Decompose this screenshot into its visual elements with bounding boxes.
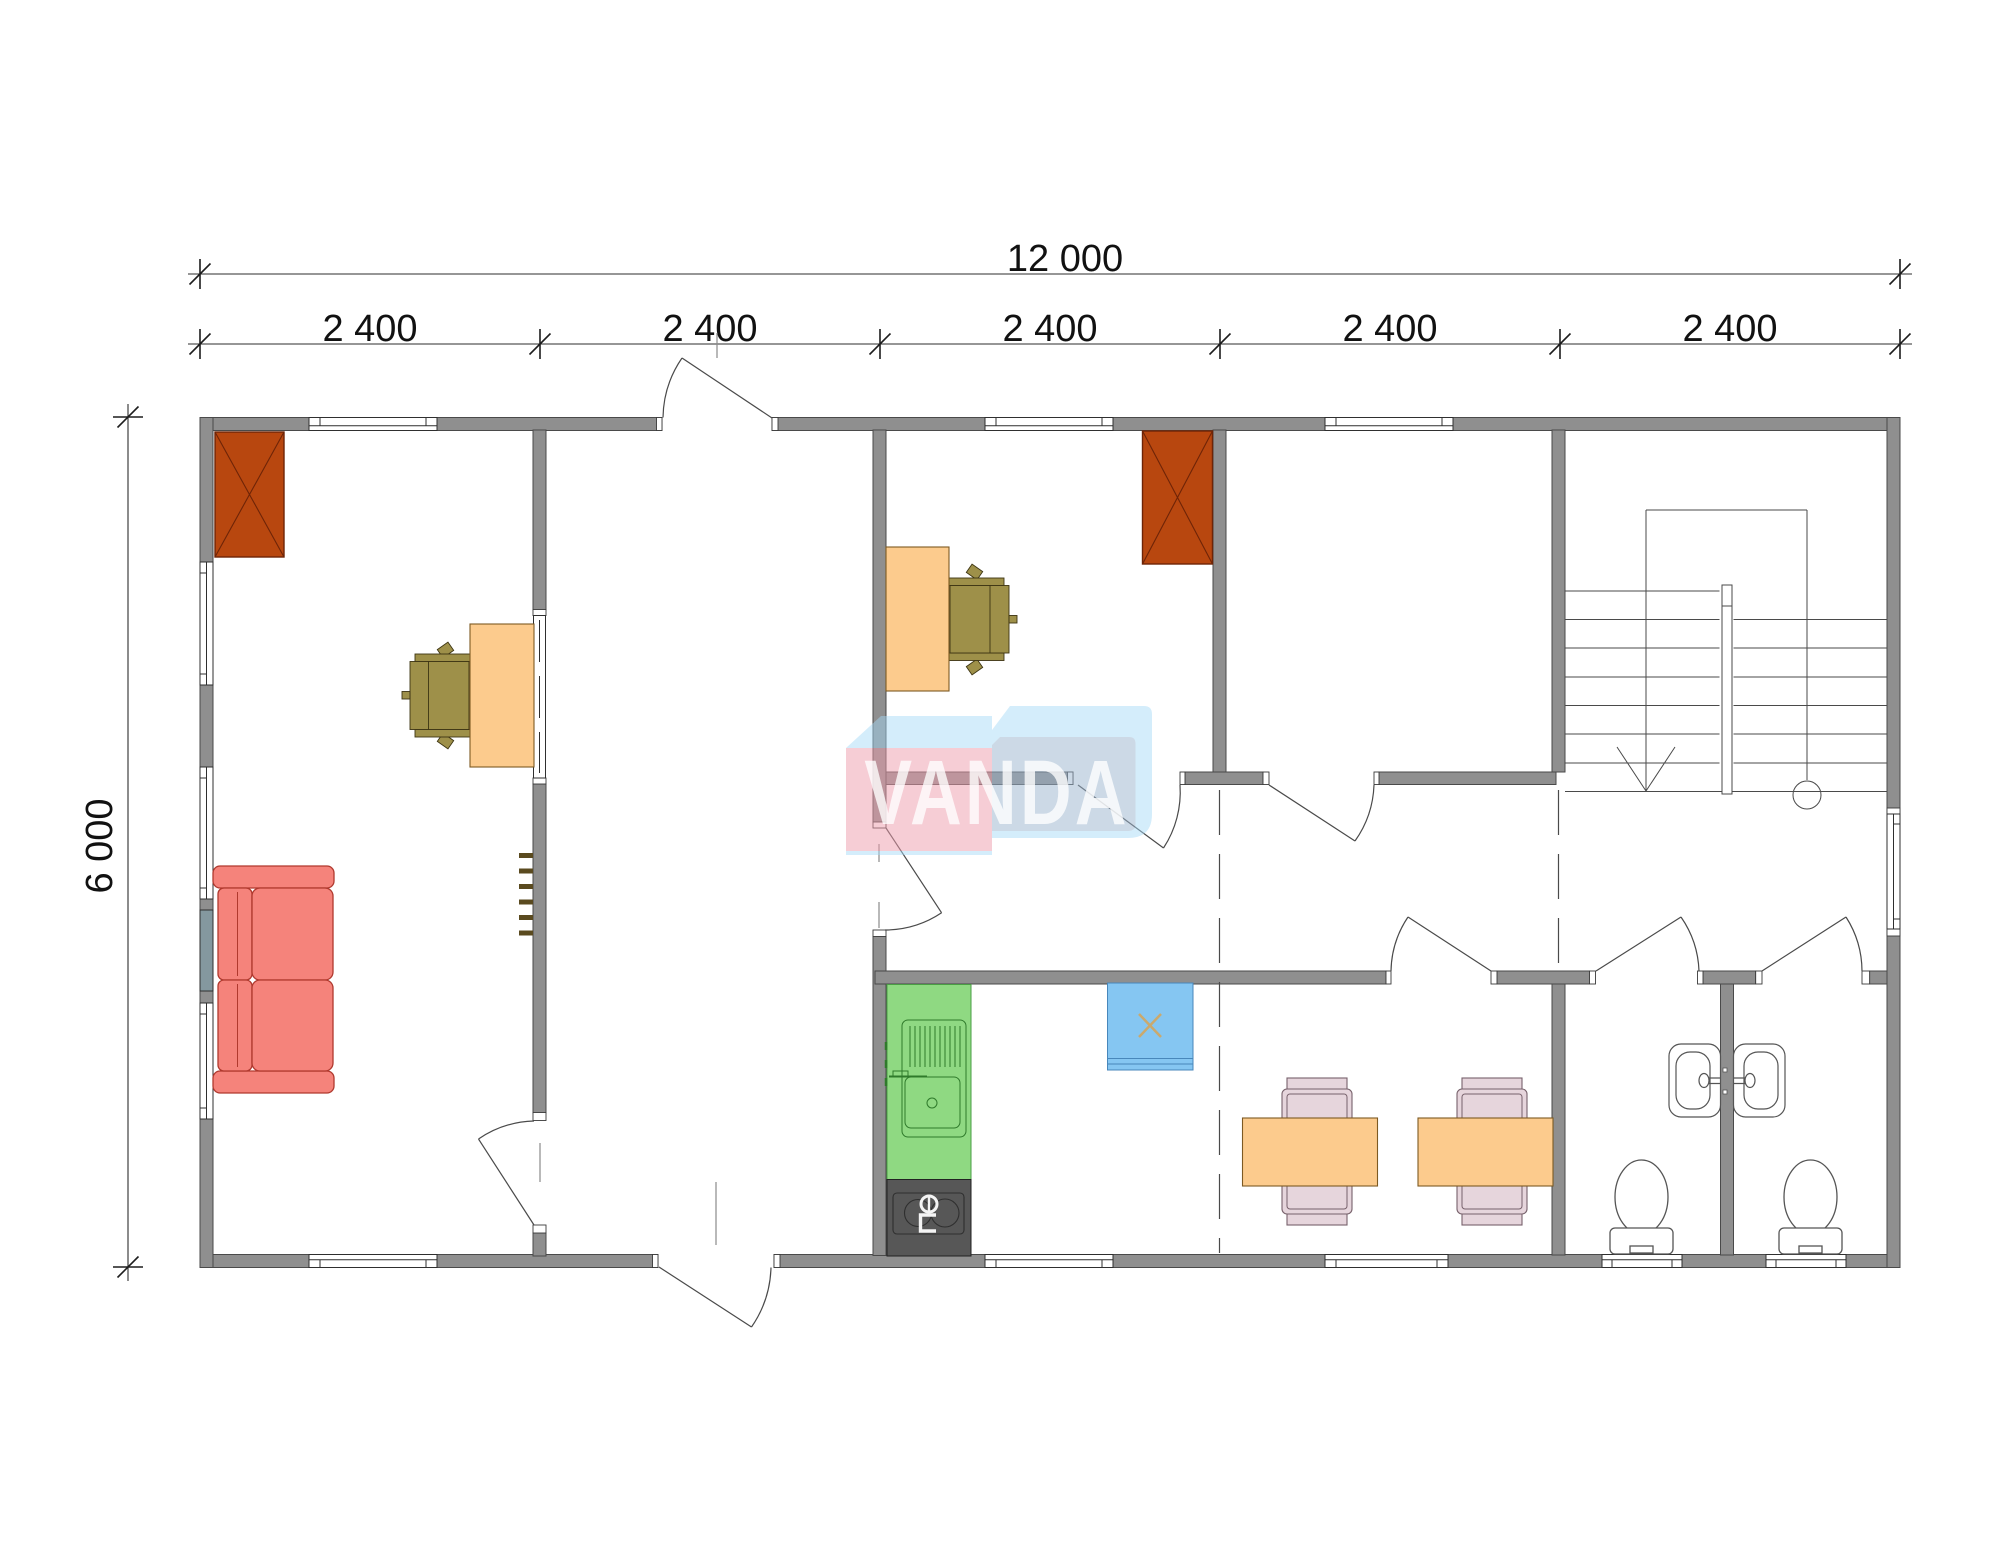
svg-text:VANDA: VANDA [864,741,1129,844]
svg-text:2 400: 2 400 [1002,308,1097,350]
svg-text:6 000: 6 000 [79,798,121,893]
svg-text:2 400: 2 400 [662,308,757,350]
svg-text:2 400: 2 400 [1682,308,1777,350]
svg-text:2 400: 2 400 [322,308,417,350]
svg-text:2 400: 2 400 [1342,308,1437,350]
svg-text:12 000: 12 000 [1007,238,1123,280]
